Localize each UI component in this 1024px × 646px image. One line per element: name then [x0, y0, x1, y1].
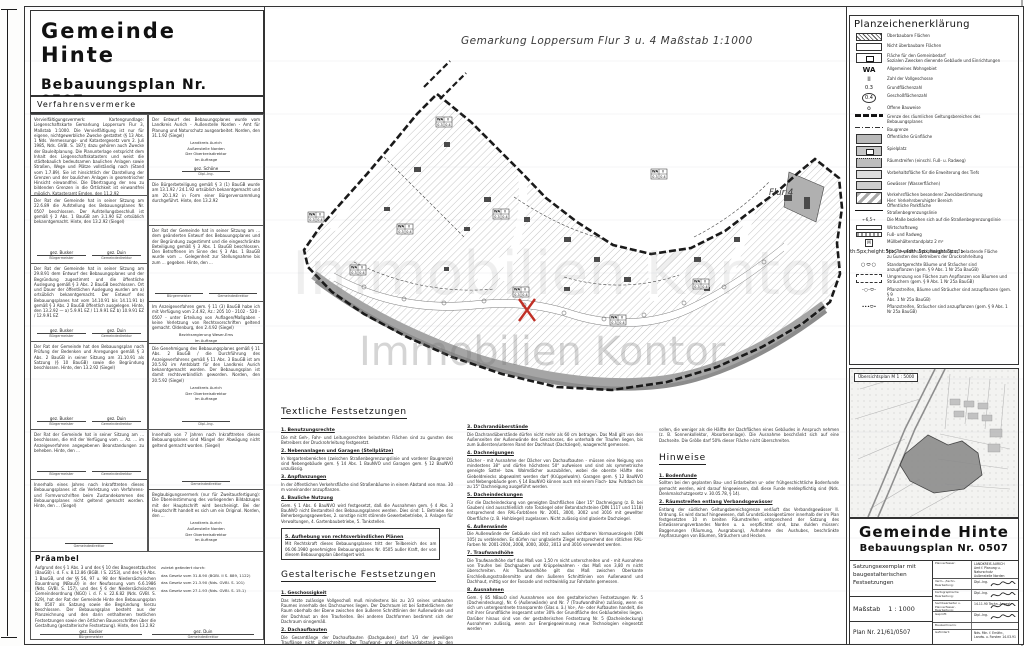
festsetzung-heading: 1. Geschossigkeit: [281, 591, 453, 596]
festsetzung-text: In der öffentlichen Verkehrsfläche sind …: [281, 482, 453, 493]
festsetzung-text: Das letzte zulässige Vollgeschoß muß min…: [281, 598, 453, 624]
watermark-text-large: Immobilien Kontor: [292, 239, 842, 309]
signature: Gemeindedirektor: [182, 476, 230, 486]
wa-box: WAII0.30.4: [397, 224, 413, 234]
spiel-symbol: [854, 146, 884, 156]
verfahrensvermerk-text: Vervielfältigungsvermerk: Kartengrundlag…: [34, 117, 144, 196]
titleblock-row-label: Planverfasser:: [933, 561, 972, 578]
legend-item: Verkehrsflächen besonderer Zweckbestimmu…: [854, 192, 1014, 208]
festsetzung-text: Die Außenwände der Gebäude sind mit nach…: [467, 531, 643, 547]
overview-map: [850, 369, 1018, 517]
signature-role: Bürgermeister: [37, 472, 86, 476]
signature: gez. BuskerBürgermeister: [37, 328, 86, 338]
svg-text:WA: WA: [437, 118, 444, 122]
wa-symbol: WA: [854, 66, 884, 74]
svg-text:WA: WA: [514, 288, 521, 292]
verfahrensvermerke-header: Verfahrensvermerke: [30, 96, 264, 114]
boundary-offshoot: [424, 61, 466, 99]
verfahrensvermerk-text: Der Rat der Gemeinde hat in seiner Sitzu…: [34, 198, 144, 224]
wa-box: WAII0.30.4: [513, 287, 529, 297]
legend-item-label: Standortgerechte Bäume und Sträucher sin…: [884, 262, 1014, 272]
svg-text:0.4: 0.4: [502, 215, 507, 219]
legend-item: 0.4Geschoßflächenzahl: [854, 93, 1014, 103]
svg-text:II: II: [704, 280, 706, 284]
festsetzung-heading: 8. Ausnahmen: [467, 588, 643, 593]
gruen-symbol: [854, 134, 884, 144]
signature-row: gez. BuskerBürgermeistergez. DuinGemeind…: [34, 250, 144, 261]
signature: gez. SchöneDipl.-Ing.: [182, 166, 230, 176]
legend-item: Umgrenzung von Flächen zum Anpflanzen vo…: [854, 274, 1014, 284]
titleblock-row-value: Nds. Min. f. Ernähr.,Landw. u. Forsten 1…: [972, 630, 1018, 641]
titleblock-row: Kartographische Bearbeitung:Dipl.-Ing.: [933, 590, 1018, 601]
titleblock-row: Bauzeichnerin:: [933, 623, 1018, 630]
festsetzung-text: Gem. § 85 NBauO sind Ausnahmen von den g…: [467, 595, 643, 632]
document-title-box: Gemeinde Hinte Bebauungsplan Nr. 0507: [30, 10, 264, 96]
signature-role: Gemeindedirektor: [92, 422, 141, 426]
pflanz1-symbol: –○–⬭–: [854, 287, 884, 293]
legend-item-label: Mit Geh-, Fahr- und Leitungsrecht zu bel…: [884, 249, 1014, 259]
authority-lines: Bezirksregierung Weser-EmsIm Auftrage: [152, 332, 260, 343]
legend-item-label: Grundflächenzahl: [884, 85, 1014, 90]
svg-text:0.3: 0.3: [694, 285, 699, 289]
titleblock-row: Planverfasser:LANDKREIS AURICHAmt f. Pla…: [933, 561, 1018, 579]
festsetzung-text: Die Dachrandüberstände dürfen nicht mehr…: [467, 432, 643, 448]
festsetzung-heading: 1. Bodenfunde: [659, 474, 839, 479]
svg-text:WA: WA: [652, 170, 659, 174]
verfahrensvermerk-box: Der Entwurf des Bebauungsplanes wurde vo…: [148, 114, 264, 180]
verfahrensvermerk-text: Innerhalb von 7 Jahren nach Inkrafttrete…: [152, 432, 260, 448]
praeambel-amendments: zuletzt geändert durch: das Gesetz vom 3…: [161, 565, 259, 628]
legend-item: –○–⬭–Pflanzstreifen, Bäume und Sträucher…: [854, 287, 1014, 303]
verfahrensvermerk-box: Die Bürgerbeteiligung gemäß § 3 (1) BauG…: [148, 180, 264, 226]
gfz-symbol: 0.4: [854, 93, 884, 103]
verfahrensvermerk-text: Innerhalb eines Jahres nach Inkrafttrete…: [34, 482, 144, 508]
amendment-entry: das Gesetz vom 27.1.93 (Nds. GVBl. S. 15…: [161, 588, 259, 593]
legend-item-label: Umgrenzung von Flächen zum Anpflanzen vo…: [884, 274, 1014, 284]
baugrenze-symbol: [854, 127, 884, 129]
verfahrensvermerk-box: Der Rat der Gemeinde hat in seiner Sitzu…: [30, 196, 148, 264]
overview-map-label: Übersichtsplan M 1 : 5000: [854, 373, 918, 382]
signature-scribble: [990, 579, 1016, 588]
svg-text:0.3: 0.3: [437, 123, 442, 127]
signature: gez. DuinGemeindedirektor: [92, 416, 141, 426]
svg-text:WA: WA: [611, 316, 618, 320]
signature-role: Gemeindedirektor: [92, 256, 141, 260]
festsetzung-heading: 3. Anpflanzungen: [281, 475, 453, 480]
festsetzung-heading: 2. Nebenanlagen und Garagen (Stellplätze…: [281, 449, 453, 454]
wa-box: WAII0.30.4: [436, 117, 452, 127]
verfahrensvermerke-section: Verfahrensvermerke Vervielfältigungsverm…: [30, 96, 264, 642]
radweg-symbol: [854, 232, 884, 237]
svg-text:WA: WA: [398, 225, 405, 229]
signature: gez. BuskerBürgermeister: [40, 629, 141, 639]
wa-box: WAII0.30.4: [493, 209, 509, 219]
signature-row: gez. BuskerBürgermeistergez. DuinGemeind…: [35, 629, 259, 640]
legend-item-label: Überbaubare Flächen: [884, 33, 1014, 38]
leitung-symbol: width:5px;height:5px;">width:5px;height:…: [854, 249, 884, 255]
verfahrensvermerk-text: Der Rat der Gemeinde hat in seiner Sitzu…: [152, 228, 260, 265]
hinweise-column: sollen, die weniger als die Hälfte der D…: [659, 399, 839, 645]
legend-item-label: Fläche für den GemeinbedarfSozialen Zwec…: [884, 53, 1014, 63]
legend-item: Wirtschaftsweg: [854, 225, 1014, 230]
signature-row: gez. BuskerBürgermeistergez. DuinGemeind…: [34, 328, 144, 339]
gestalterische-festsetzungen-header: Gestalterische Festsetzungen: [281, 570, 436, 582]
praeambel-header: Präambel: [35, 554, 259, 563]
column-divider: [846, 7, 847, 644]
textliche-festsetzungen-header: Textliche Festsetzungen: [281, 407, 407, 419]
signature-row: gez. BuskerBürgermeistergez. DuinGemeind…: [34, 416, 144, 427]
festsetzung-heading: 4. Bauliche Nutzung: [281, 496, 453, 501]
legend-item: •••⬭•Pflanzstreifen, Sträucher sind anzu…: [854, 304, 1014, 314]
grenze-symbol: [854, 114, 884, 117]
openbox-symbol: [854, 43, 884, 51]
svg-text:0.3: 0.3: [351, 271, 356, 275]
festsetzung-heading: 1. Benutzungsrechte: [281, 428, 453, 433]
verfahrensvermerk-box: Der Rat der Gemeinde hat in seiner Sitzu…: [148, 226, 264, 302]
verfahrensvermerke-left-column: Vervielfältigungsvermerk: Kartengrundlag…: [30, 114, 148, 552]
title-block-municipality: Gemeinde Hinte: [850, 523, 1018, 541]
verfahrensvermerk-box: Der Rat der Gemeinde hat in seiner Sitzu…: [30, 430, 148, 480]
legend-item: Räumstreifen (einschl. Fuß- u. Radweg): [854, 158, 1014, 168]
legend-item-label: Offene Bauweise: [884, 105, 1014, 110]
festsetzung-text: Dächer - mit Ausnahme der Dächer von Dac…: [467, 458, 643, 490]
ii-symbol: II: [854, 76, 884, 83]
titleblock-row-label: Bauzeichnerin:: [933, 623, 972, 629]
legend-item: Grenze des räumlichen Geltungsbereiches …: [854, 114, 1014, 124]
festsetzung-heading: 5. Dacheindeckungen: [467, 493, 643, 498]
svg-text:0.3: 0.3: [398, 230, 403, 234]
titleblock-row-value: 14.11.90 Techn.-Angest.: [972, 601, 1018, 611]
verfahrensvermerk-box: Im Anzeigeverfahren gem. § 11 (3) BauGB …: [148, 302, 264, 344]
titleblock-row-label: Sachbearbeiter u. Planverfasser, Bearbei…: [933, 601, 972, 611]
signature: gez. DuinGemeindedirektor: [152, 629, 253, 639]
wa-box: WAII0.30.4: [610, 315, 626, 325]
plan-number-cell: Plan Nr. 21/61/0507: [850, 622, 932, 644]
legend-item-label: Geschoßflächenzahl: [884, 93, 1014, 98]
crop-mark: [1, 637, 17, 638]
gemeinbedarf-symbol: [854, 53, 884, 63]
legend-item: Vorbehaltsfläche für die Erweiterung des…: [854, 170, 1014, 179]
legend-item: Nicht überbaubare Flächen: [854, 43, 1014, 51]
signature-role: Bürgermeister: [37, 422, 86, 426]
festsetzung-text: Sollten bei den geplanten Bau- und Erdar…: [659, 480, 839, 496]
signature-role: Gemeindedirektor: [65, 544, 114, 548]
titleblock-row: Geprüft:Dipl.-Ing.: [933, 612, 1018, 623]
gestalterische-festsetzungen-column: 3. DachrandüberständeDie Dachrandüberstä…: [467, 399, 643, 645]
legend-item-label: Zahl der Vollgeschosse: [884, 76, 1014, 81]
titleblock-row-value: Dipl.-Ing.: [972, 579, 1018, 589]
watermark-text: Immobilien Kontor: [359, 329, 726, 375]
titleblock-row-label: Verm.- /techn. Bearbeitung:: [933, 579, 972, 589]
signature-scribble: [990, 590, 1016, 599]
verfahrensvermerk-text: Die Genehmigung des Bebauungsplanes gemä…: [152, 346, 260, 383]
scanned-plan-document: { "header": { "municipality": "Gemeinde …: [0, 0, 1024, 646]
legend-item: Straßenbegrenzungslinie: [854, 210, 1014, 215]
legend-item-label: Nicht überbaubare Flächen: [884, 43, 1014, 48]
pflanz2-symbol: •••⬭•: [854, 304, 884, 310]
festsetzung-heading: 6. Außenwände: [467, 525, 643, 530]
signature-role: Gemeindedirektor: [92, 472, 141, 476]
crop-mark: [1, 9, 17, 10]
overview-map-box: Übersichtsplan M 1 : 5000: [849, 368, 1019, 518]
signature: Gemeindedirektor: [92, 466, 141, 476]
signature: Bürgermeister: [37, 466, 86, 476]
signature-role: Gemeindedirektor: [152, 635, 253, 639]
map-title: Gemarkung Loppersum Flur 3 u. 4 Maßstab …: [461, 35, 791, 47]
legend-item-label: Baugrenze: [884, 127, 1014, 132]
legend-item: IIZahl der Vollgeschosse: [854, 76, 1014, 83]
svg-text:WA: WA: [494, 210, 501, 214]
legend-item: Öffentliche Grünfläche: [854, 134, 1014, 144]
verfahrensvermerk-box: Beglaubigungsvermerk (nur für Zweitausfe…: [148, 490, 264, 552]
signature-role: Bürgermeister: [155, 294, 203, 298]
amendment-entry: das Gesetz vom 31.8.90 (BGBl. II S. 889,…: [161, 573, 259, 578]
legend-item-label: Pflanzstreifen, Sträucher sind anzupflan…: [884, 304, 1014, 314]
festsetzung-text: Die mit Geh-, Fahr- und Leitungsrechten …: [281, 435, 453, 446]
flur-label: Flur 4: [769, 188, 793, 198]
strasse-symbol: [854, 210, 884, 211]
grz-symbol: 0.3: [854, 85, 884, 91]
svg-text:0.3: 0.3: [611, 321, 616, 325]
titleblock-row-value: [972, 623, 1018, 629]
signature-scribble: [990, 601, 1016, 610]
svg-text:II: II: [621, 316, 623, 320]
legend-item-label: Gewässer (Wasserflächen): [884, 181, 1014, 186]
legend-item: Fläche für den GemeinbedarfSozialen Zwec…: [854, 53, 1014, 63]
verfahrensvermerk-box: Innerhalb von 7 Jahren nach Inkrafttrete…: [148, 430, 264, 490]
titleblock-row: Gefördert:Nds. Min. f. Ernähr.,Landw. u.…: [933, 630, 1018, 641]
signature-row: Gemeindedirektor: [34, 538, 144, 549]
scan-edge-line: [7, 10, 8, 636]
praeambel-text: Aufgrund des § 1 Abs. 3 und des § 10 des…: [35, 565, 156, 628]
legend-item: MMüllbehälterstandplatz 2 m²: [854, 239, 1014, 247]
legend-item-label: Vorbehaltsfläche für die Erweiterung des…: [884, 170, 1014, 175]
svg-text:0.4: 0.4: [406, 230, 411, 234]
wweg-symbol: [854, 225, 884, 230]
signature-role: Bürgermeister: [40, 635, 141, 639]
svg-text:II: II: [504, 210, 506, 214]
signature: Dipl.-Ing.: [182, 416, 230, 426]
praeambel-box: Präambel Aufgrund des § 1 Abs. 3 und des…: [30, 552, 264, 640]
svg-text:0.4: 0.4: [660, 175, 665, 179]
festsetzung-text: Entlang der südlichen Geltungsbereichsgr…: [659, 507, 839, 539]
svg-text:II: II: [447, 118, 449, 122]
svg-text:0.3: 0.3: [494, 215, 499, 219]
svg-text:0.4: 0.4: [359, 271, 364, 275]
signature: gez. BuskerBürgermeister: [37, 250, 86, 260]
festsetzung-heading: 2. Räumstreifen entlang Verbandsgewässer: [659, 500, 839, 505]
legend-item-label: Verkehrsflächen besonderer Zweckbestimmu…: [884, 192, 1014, 208]
legend-item: ←6,5→Die Maße beziehen sich auf die Stra…: [854, 217, 1014, 222]
svg-text:0.3: 0.3: [652, 175, 657, 179]
signature-role: Gemeindedirektor: [182, 482, 230, 486]
signature: gez. DuinGemeindedirektor: [92, 328, 141, 338]
legend-item: width:5px;height:5px;">width:5px;height:…: [854, 249, 1014, 259]
textliche-festsetzungen-column: Textliche Festsetzungen 1. Benutzungsrec…: [281, 399, 453, 645]
aufhebung-text: Mit Rechtskraft dieses Bebauungsplanes t…: [285, 541, 436, 557]
signature-row: Dipl.-Ing.: [152, 416, 260, 427]
hatch-symbol: [854, 33, 884, 41]
wa-box: WAII0.30.4: [308, 212, 324, 222]
festsetzung-heading: 3. Dachrandüberstände: [467, 425, 643, 430]
signature-row: Bürgermeister Gemeindedirektor: [152, 288, 260, 299]
wa-box: WAII0.30.4: [651, 169, 667, 179]
titleblock-row-value: Dipl.-Ing.: [972, 612, 1018, 622]
legend-item-label: Müllbehälterstandplatz 2 m²: [884, 239, 1014, 244]
signature-row: gez. SchöneDipl.-Ing.: [152, 166, 260, 177]
svg-text:0.4: 0.4: [522, 293, 527, 297]
festsetzung-heading: 2. Dachaufbauten: [281, 628, 453, 633]
verfahrensvermerk-box: Der Rat der Gemeinde hat in seiner Sitzu…: [30, 264, 148, 342]
festsetzung-text: Gem. § 1 Abs. 6 BauNVO wird festgesetzt,…: [281, 503, 453, 524]
scale-cell: Maßstab 1 : 1000: [850, 597, 932, 622]
hinweise-header: Hinweise: [659, 453, 706, 465]
legend-item-label: Pflanzstreifen, Bäume und Sträucher sind…: [884, 287, 1014, 303]
svg-text:0.4: 0.4: [445, 123, 450, 127]
authority-lines: Landkreis AurichDer OberkreisdirektorIm …: [152, 385, 260, 402]
authority-lines: Landkreis AurichAußenstelle NordenDer Ob…: [152, 520, 260, 543]
legend-item: Gewässer (Wasserflächen): [854, 181, 1014, 190]
legend-box: Planzeichenerklärung Überbaubare Flächen…: [849, 15, 1019, 365]
verfahrensvermerk-box: Innerhalb eines Jahres nach Inkrafttrete…: [30, 480, 148, 552]
legend-item-label: Grenze des räumlichen Geltungsbereiches …: [884, 114, 1014, 124]
svg-text:0.4: 0.4: [702, 285, 707, 289]
svg-text:WA: WA: [351, 266, 358, 270]
o-symbol: o: [854, 105, 884, 112]
vorbehalt-symbol: [854, 170, 884, 179]
signature-role: Dipl.-Ing.: [182, 422, 230, 426]
festsetzung-text: Die Gesamtlänge der Dachaufbauten (Dachg…: [281, 635, 453, 645]
legend-item: Baugrenze: [854, 127, 1014, 132]
signature-role: Gemeindedirektor: [209, 294, 257, 298]
verfahrensvermerk-text: Die Bürgerbeteiligung gemäß § 3 (1) BauG…: [152, 182, 260, 203]
signature: Gemeindedirektor: [65, 538, 114, 548]
plan-sheet: Gemeinde Hinte Bebauungsplan Nr. 0507 Ve…: [24, 6, 1024, 645]
signature-scribble: [990, 612, 1016, 621]
signature-row: Bürgermeister Gemeindedirektor: [34, 466, 144, 477]
title-block-plan-number: Bebauungsplan Nr. 0507: [850, 543, 1018, 554]
legend-item: Spielplatz: [854, 146, 1014, 156]
legend-item: ○⬭○Standortgerechte Bäume und Sträucher …: [854, 262, 1014, 272]
festsetzung-text: Für die Dacheindeckung von geneigten Dac…: [467, 500, 643, 521]
signature: gez. BuskerBürgermeister: [37, 416, 86, 426]
festsetzung-heading: 7. Traufwandhöhe: [467, 551, 643, 556]
svg-text:0.4: 0.4: [317, 218, 322, 222]
wa-box: WAII0.30.4: [693, 279, 709, 289]
legend-item: WAAllgemeines Wohngebiet: [854, 66, 1014, 74]
signature-row: Gemeindedirektor: [152, 476, 260, 487]
festsetzung-heading: 4. Dachneigungen: [467, 451, 643, 456]
verfahrensvermerk-text: Beglaubigungsvermerk (nur für Zweitausfe…: [152, 492, 260, 518]
svg-text:WA: WA: [309, 213, 316, 217]
svg-text:WA: WA: [694, 280, 701, 284]
legend-item-label: Fuß- und Radweg: [884, 232, 1014, 237]
verkehr-symbol: [854, 192, 884, 204]
legend-item: Fuß- und Radweg: [854, 232, 1014, 237]
legend-item: oOffene Bauweise: [854, 105, 1014, 112]
titleblock-row-value: LANDKREIS AURICHAmt f. Planung u. Naturs…: [972, 561, 1018, 578]
legend-item-label: Allgemeines Wohngebiet: [884, 66, 1014, 71]
amendments-label: zuletzt geändert durch:: [161, 565, 259, 570]
title-block: Gemeinde Hinte Bebauungsplan Nr. 0507 Sa…: [849, 518, 1019, 645]
svg-text:0.3: 0.3: [514, 293, 519, 297]
authority-lines: Landkreis AurichAußenstelle NordenDer Ob…: [152, 140, 260, 163]
signature-role: Gemeindedirektor: [92, 334, 141, 338]
titleblock-row-label: Gefördert:: [933, 630, 972, 641]
scale-label: Maßstab: [853, 605, 880, 613]
aufhebung-heading: 5. Aufhebung von rechtsverbindlichen Plä…: [285, 535, 436, 540]
verfahrensvermerk-box: Die Genehmigung des Bebauungsplanes gemä…: [148, 344, 264, 430]
verfahrensvermerk-text: Der Entwurf des Bebauungsplanes wurde vo…: [152, 117, 260, 138]
legend-item: 0.3Grundflächenzahl: [854, 85, 1014, 91]
legend-item-label: Die Maße beziehen sich auf die Straßenbe…: [884, 217, 1014, 222]
municipality-title: Gemeinde Hinte: [41, 19, 253, 67]
signature: gez. DuinGemeindedirektor: [92, 250, 141, 260]
svg-text:II: II: [524, 288, 526, 292]
signature: Bürgermeister: [155, 288, 203, 298]
titleblock-row-label: Kartographische Bearbeitung:: [933, 590, 972, 600]
legend-item: Überbaubare Flächen: [854, 33, 1014, 41]
verfahrensvermerk-box: Vervielfältigungsvermerk: Kartengrundlag…: [30, 114, 148, 196]
svg-text:II: II: [408, 225, 410, 229]
svg-text:II: II: [662, 170, 664, 174]
wasser-symbol: [854, 181, 884, 190]
titleblock-row: Verm.- /techn. Bearbeitung:Dipl.-Ing.: [933, 579, 1018, 590]
legend-item-label: Wirtschaftsweg: [884, 225, 1014, 230]
verfahrensvermerke-right-column: Der Entwurf des Bebauungsplanes wurde vo…: [148, 114, 264, 552]
aufhebung-box: 5. Aufhebung von rechtsverbindlichen Plä…: [281, 528, 440, 560]
svg-text:II: II: [319, 213, 321, 217]
legend-item-label: Öffentliche Grünfläche: [884, 134, 1014, 139]
signature-role: Bürgermeister: [37, 334, 86, 338]
signature: Gemeindedirektor: [209, 288, 257, 298]
titleblock-row-label: Geprüft:: [933, 612, 972, 622]
amendment-entry: das Gesetz vom 21.3.90 (Nds. GVBl. S. 10…: [161, 580, 259, 585]
verfahrensvermerk-text: Der Rat der Gemeinde hat in seiner Sitzu…: [34, 266, 144, 319]
scale-value: 1 : 1000: [888, 605, 915, 613]
umgrenzung-symbol: [854, 274, 884, 283]
ausnahmen-continuation: sollen, die weniger als die Hälfte der D…: [659, 427, 839, 443]
titleblock-row-value: Dipl.-Ing.: [972, 590, 1018, 600]
site-plan-map: Immobilien Kontor Immobilien Kontor Flur…: [264, 47, 846, 399]
titleblock-row: Sachbearbeiter u. Planverfasser, Bearbei…: [933, 601, 1018, 612]
legend-header: Planzeichenerklärung: [854, 19, 1014, 30]
svg-text:0.4: 0.4: [619, 321, 624, 325]
verfahrensvermerk-text: Der Rat der Gemeinde hat in seiner Sitzu…: [34, 432, 144, 453]
signature-role: Bürgermeister: [37, 256, 86, 260]
title-block-signature-rows: Planverfasser:LANDKREIS AURICHAmt f. Pla…: [933, 561, 1018, 644]
baeume-symbol: ○⬭○: [854, 262, 884, 268]
verfahrensvermerk-text: Im Anzeigeverfahren gem. § 11 (3) BauGB …: [152, 304, 260, 330]
masse-symbol: ←6,5→: [854, 217, 884, 222]
legend-item-label: Straßenbegrenzungslinie: [884, 210, 1014, 215]
festsetzung-text: Die Traufwandhöhe darf das Maß von 1,50 …: [467, 558, 643, 584]
legend-item-label: Spielplatz: [884, 146, 1014, 151]
title-block-header: Gemeinde Hinte Bebauungsplan Nr. 0507: [850, 519, 1018, 561]
festsetzung-text: In Vorgartenbereichen (zwischen Straßenb…: [281, 456, 453, 472]
legend-item-label: Räumstreifen (einschl. Fuß- u. Radweg): [884, 158, 1014, 163]
verfahrensvermerk-text: Der Rat der Gemeinde hat den Bebauungspl…: [34, 344, 144, 370]
svg-text:II: II: [361, 266, 363, 270]
raum-symbol: [854, 158, 884, 168]
exemplar-cell: Satzungsexemplar mit baugestalterischen …: [850, 561, 932, 597]
verfahrensvermerk-box: Der Rat der Gemeinde hat den Bebauungspl…: [30, 342, 148, 430]
svg-text:0.3: 0.3: [309, 218, 314, 222]
muell-symbol: M: [854, 239, 884, 247]
signature-role: Dipl.-Ing.: [182, 172, 230, 176]
wa-box: WAII0.30.4: [350, 265, 366, 275]
